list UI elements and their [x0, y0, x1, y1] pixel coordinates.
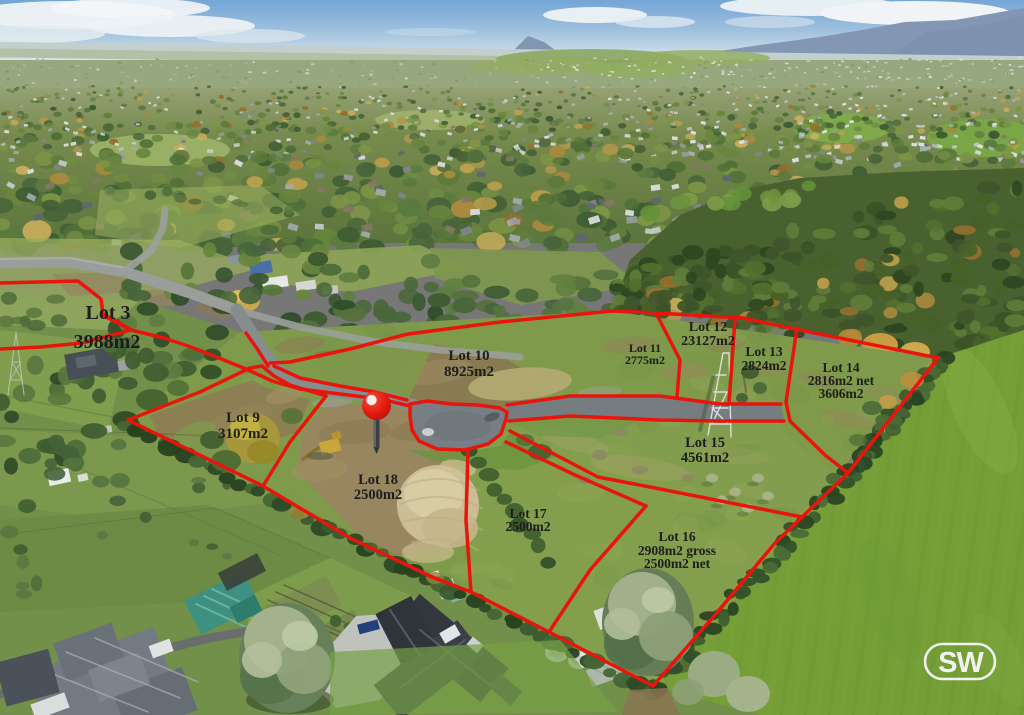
svg-text:Lot 9: Lot 9	[226, 410, 260, 426]
svg-text:23127m2: 23127m2	[681, 334, 735, 349]
svg-text:2500m2: 2500m2	[354, 487, 402, 503]
svg-text:Lot 15: Lot 15	[685, 435, 725, 451]
svg-text:Lot 16: Lot 16	[658, 529, 695, 544]
svg-text:Lot 3: Lot 3	[86, 302, 131, 324]
svg-text:SW: SW	[938, 647, 984, 679]
svg-text:3988m2: 3988m2	[74, 331, 141, 353]
svg-text:Lot 13: Lot 13	[745, 344, 782, 359]
svg-text:8925m2: 8925m2	[444, 364, 494, 380]
svg-text:2500m2 net: 2500m2 net	[644, 556, 711, 571]
svg-text:Lot 18: Lot 18	[358, 472, 398, 488]
svg-text:Lot 10: Lot 10	[448, 348, 489, 364]
svg-text:3606m2: 3606m2	[819, 386, 864, 401]
svg-text:2824m2: 2824m2	[742, 358, 787, 373]
svg-text:3107m2: 3107m2	[218, 426, 268, 442]
svg-text:4561m2: 4561m2	[681, 450, 729, 466]
svg-text:2500m2: 2500m2	[506, 519, 551, 534]
svg-text:Lot 12: Lot 12	[689, 320, 728, 335]
svg-text:2775m2: 2775m2	[625, 353, 665, 367]
